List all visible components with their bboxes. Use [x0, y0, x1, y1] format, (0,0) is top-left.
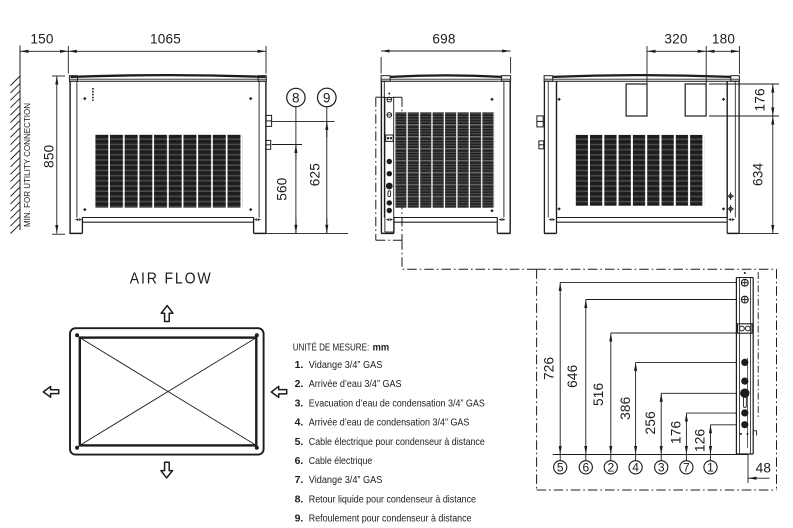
svg-text:9.: 9. [295, 514, 304, 525]
svg-text:MIN. FOR UTILITY CONNECTION: MIN. FOR UTILITY CONNECTION [22, 103, 32, 227]
svg-text:8: 8 [292, 90, 300, 105]
svg-text:UNITÉ DE MESURE:: UNITÉ DE MESURE: [293, 341, 370, 354]
svg-text:9: 9 [323, 90, 331, 105]
svg-text:150: 150 [30, 31, 54, 46]
svg-text:5: 5 [557, 461, 564, 475]
svg-text:1: 1 [707, 461, 714, 475]
svg-text:126: 126 [693, 429, 708, 452]
svg-text:Refoulement pour condenseur à: Refoulement pour condenseur à distance [309, 514, 472, 525]
svg-text:Arrivée d’eau 3/4” GAS: Arrivée d’eau 3/4” GAS [309, 379, 402, 390]
svg-text:AIR FLOW: AIR FLOW [130, 271, 213, 288]
svg-text:1065: 1065 [150, 31, 181, 46]
svg-text:3.: 3. [295, 398, 304, 409]
svg-text:698: 698 [432, 31, 455, 46]
svg-text:mm: mm [373, 343, 390, 354]
svg-text:6: 6 [582, 461, 589, 475]
svg-text:850: 850 [41, 144, 56, 168]
svg-text:560: 560 [274, 177, 289, 201]
svg-text:646: 646 [565, 365, 580, 388]
svg-text:Arrivée d’eau de condensation: Arrivée d’eau de condensation 3/4” GAS [309, 418, 470, 429]
svg-text:176: 176 [752, 88, 767, 111]
svg-text:634: 634 [751, 163, 766, 187]
svg-text:8.: 8. [295, 494, 304, 505]
svg-text:Evacuation d’eau de condensati: Evacuation d’eau de condensation 3/4” GA… [309, 398, 485, 409]
svg-text:1.: 1. [295, 360, 304, 371]
svg-text:726: 726 [541, 357, 556, 380]
svg-text:625: 625 [307, 163, 322, 186]
svg-text:516: 516 [591, 383, 606, 406]
svg-text:Vidange 3/4” GAS: Vidange 3/4” GAS [309, 475, 383, 486]
svg-text:6.: 6. [295, 456, 304, 467]
svg-text:Cable électrique pour condense: Cable électrique pour condenseur à dista… [309, 437, 485, 448]
svg-text:3: 3 [658, 461, 665, 475]
svg-text:7: 7 [683, 461, 690, 475]
svg-text:2: 2 [607, 461, 614, 475]
svg-text:256: 256 [643, 411, 658, 434]
svg-text:4: 4 [632, 461, 639, 475]
svg-text:176: 176 [668, 421, 683, 444]
svg-text:48: 48 [756, 460, 772, 475]
svg-text:2.: 2. [295, 379, 304, 390]
svg-text:5.: 5. [295, 437, 304, 448]
svg-text:386: 386 [618, 397, 633, 420]
svg-text:320: 320 [664, 31, 688, 46]
svg-text:Retour liquide pour condenseur: Retour liquide pour condenseur à distanc… [309, 494, 476, 505]
svg-text:Vidange 3/4” GAS: Vidange 3/4” GAS [309, 360, 383, 371]
svg-text:180: 180 [712, 31, 736, 46]
svg-text:4.: 4. [295, 418, 304, 429]
svg-text:7.: 7. [295, 475, 304, 486]
svg-text:Cable électrique: Cable électrique [309, 456, 373, 467]
